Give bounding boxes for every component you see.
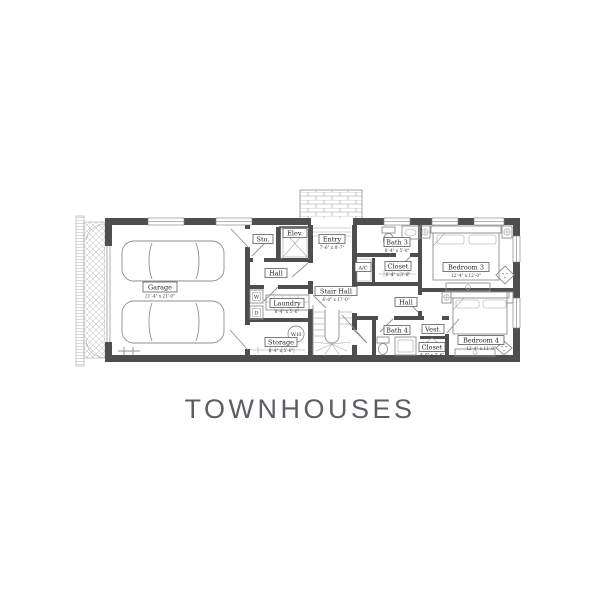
- svg-text:12'-4" x 11'-0": 12'-4" x 11'-0": [466, 346, 496, 351]
- svg-text:W: W: [254, 295, 260, 301]
- room-label-garage: Garage 21'-4" x 21'-0": [143, 282, 177, 299]
- room-label-entry: Entry 7'-6" x 8'-7": [319, 235, 345, 251]
- svg-text:Closet: Closet: [422, 344, 443, 352]
- room-label-sto: Sto.: [253, 235, 273, 244]
- floor-plan: Garage 21'-4" x 21'-0" Sto. Elev. Entry …: [0, 0, 600, 600]
- svg-text:21'-4" x 21'-0": 21'-4" x 21'-0": [145, 294, 175, 299]
- svg-text:8'-4" x 5'-6": 8'-4" x 5'-6": [269, 348, 294, 353]
- svg-text:Bath 4: Bath 4: [386, 327, 408, 335]
- bath4-fixtures: [377, 337, 416, 355]
- svg-text:Hall: Hall: [269, 270, 283, 278]
- svg-text:Bedroom 4: Bedroom 4: [463, 337, 499, 345]
- svg-text:Sto.: Sto.: [257, 236, 270, 244]
- room-label-vest: Vest.: [422, 325, 444, 334]
- svg-text:Laundry: Laundry: [273, 300, 301, 308]
- svg-text:12'-4" x 12'-0": 12'-4" x 12'-0": [451, 273, 481, 278]
- room-label-stair-hall: Stair Hall 4'-0" x 17'-0": [315, 287, 357, 303]
- svg-text:6'-4" x 5'-6": 6'-4" x 5'-6": [275, 309, 300, 314]
- room-label-closet4: Closet 4'-0" x 3'-6": [419, 343, 445, 358]
- svg-text:Closet: Closet: [388, 263, 409, 271]
- svg-text:Stair Hall: Stair Hall: [320, 288, 352, 296]
- svg-text:8'-4" x 5'-0": 8'-4" x 5'-0": [385, 248, 410, 253]
- room-label-hall-left: Hall: [265, 269, 287, 278]
- svg-text:Storage: Storage: [268, 339, 294, 347]
- room-label-storage: Storage 8'-4" x 5'-6": [265, 338, 297, 354]
- entry-stoop: [300, 190, 362, 220]
- appliance-label-washer: W: [254, 295, 260, 301]
- hose-bib-icon: [118, 347, 140, 355]
- svg-text:Garage: Garage: [148, 284, 172, 292]
- room-label-hall-right: Hall: [395, 298, 417, 307]
- svg-text:Bath 3: Bath 3: [386, 239, 408, 247]
- svg-text:Bedroom 3: Bedroom 3: [448, 264, 484, 272]
- bedroom3-furniture: [420, 226, 514, 291]
- svg-text:6'-4" x 3'-0": 6'-4" x 3'-0": [386, 272, 411, 277]
- room-label-ac: A/C: [355, 263, 371, 272]
- stairs: [313, 305, 367, 356]
- svg-text:Hall: Hall: [399, 299, 413, 307]
- page-title: TOWNHOUSES: [184, 394, 415, 424]
- driveway-apron: [76, 216, 105, 366]
- svg-text:D: D: [254, 311, 258, 317]
- svg-text:Entry: Entry: [323, 236, 342, 244]
- svg-text:A/C: A/C: [357, 266, 367, 272]
- svg-text:7'-6" x 8'-7": 7'-6" x 8'-7": [320, 245, 345, 250]
- svg-text:4'-0" x 17'-0": 4'-0" x 17'-0": [322, 297, 349, 302]
- room-label-laundry: Laundry 6'-4" x 5'-6": [270, 299, 304, 315]
- room-label-closet3: Closet 6'-4" x 3'-0": [385, 262, 411, 278]
- room-label-bedroom3: Bedroom 3 12'-4" x 12'-0": [443, 263, 489, 279]
- svg-text:Elev.: Elev.: [287, 230, 303, 238]
- room-label-bath3: Bath 3 8'-4" x 5'-0": [384, 238, 410, 254]
- svg-text:Vest.: Vest.: [424, 326, 441, 334]
- floor-plan-page: Garage 21'-4" x 21'-0" Sto. Elev. Entry …: [0, 0, 600, 600]
- svg-text:4'-0" x 3'-6": 4'-0" x 3'-6": [420, 353, 445, 358]
- room-label-elev: Elev.: [283, 229, 307, 238]
- room-label-bath4: Bath 4: [384, 326, 410, 335]
- appliance-label-dryer: D: [254, 311, 258, 317]
